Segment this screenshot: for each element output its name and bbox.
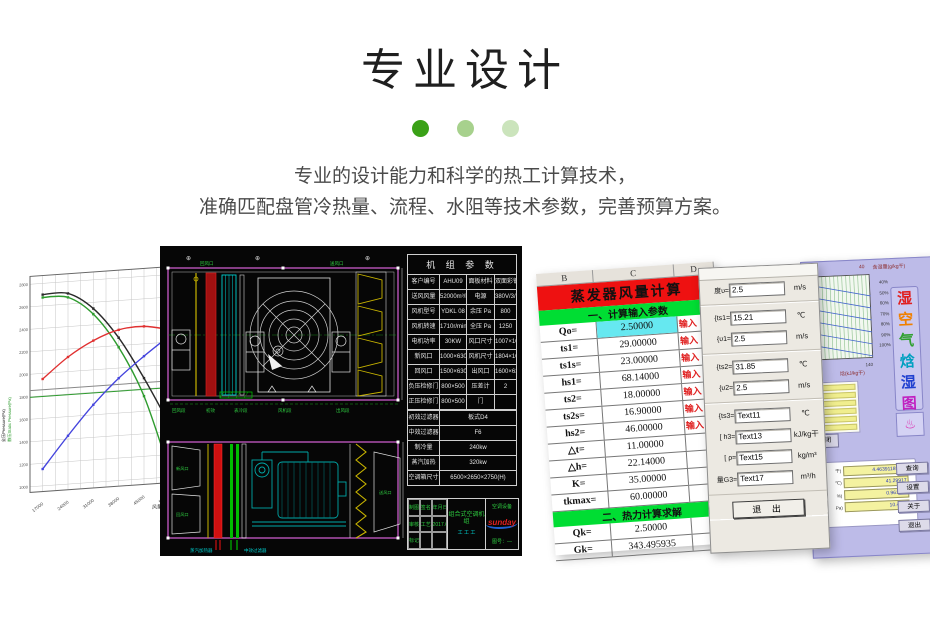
psy-rh-tick: 90% — [874, 332, 890, 338]
cad-table-cell: 30KW — [440, 335, 467, 349]
cad-table-cell: 全压 Pa — [467, 320, 495, 334]
svg-text:⊕: ⊕ — [365, 256, 370, 262]
dialog-field-input[interactable]: 31.85 — [732, 358, 789, 374]
svg-text:2200: 2200 — [19, 349, 29, 355]
cad-table-cell: 240kw — [440, 441, 516, 455]
dialog-field-label: {υ1= — [705, 336, 731, 344]
cad-table-cell: 320kw — [440, 456, 516, 470]
title-block-cell: 标记 — [408, 532, 420, 549]
divider-dot — [412, 120, 429, 137]
psy-title-char: 湿 — [897, 287, 913, 309]
dialog-field-unit: m³/h — [793, 471, 823, 481]
title-block-cell: 制图 — [408, 499, 420, 516]
cad-table-cell: 新风口 — [408, 350, 440, 364]
cad-parameter-table: 机 组 参 数 客户编号 AHU09 面板材料 双面彩钢板 送风风量 52 — [407, 254, 517, 486]
cad-table-cell: YDKL 08 — [440, 305, 467, 319]
cad-table-cell: 面板材料 — [467, 275, 495, 289]
cad-top-label-2: 送风口 — [330, 260, 344, 267]
cad-table-cell: 1500×630 — [440, 365, 467, 379]
dialog-field-unit: m/s — [787, 331, 817, 341]
svg-text:1600: 1600 — [19, 417, 29, 423]
psy-button[interactable]: 设置 — [897, 481, 929, 494]
cad-table-cell: 余压 Pa — [467, 305, 495, 319]
cad-table-row: 蒸汽加热 320kw — [407, 455, 517, 470]
cad-table-row: 回风口 1500×630 出风口 1600×630 — [407, 364, 517, 379]
page-title: 专业设计 — [0, 0, 930, 98]
psy-top-axis-label: 含湿量(g/kg干) — [872, 262, 905, 270]
dialog-field-label: {υ2= — [707, 385, 733, 393]
cad-table-row: 初效过滤器 板式D4 — [407, 410, 517, 425]
cad-view2-label-1: 新风口 — [176, 465, 189, 472]
cad-table-cell: AHU09 — [440, 275, 467, 289]
svg-text:2600: 2600 — [19, 304, 29, 310]
svg-text:1000: 1000 — [19, 484, 29, 490]
cad-table-cell: 1007×1007 — [495, 335, 516, 349]
svg-text:1200: 1200 — [19, 462, 29, 468]
title-block-cell: 年月日 — [432, 499, 447, 516]
cad-table-row: 空调箱尺寸 6500×2650×2750(H) — [407, 470, 517, 486]
cad-table-row: 正压检修门 800×500 门 — [407, 394, 517, 410]
dialog-field-row: 量G3= Text17 m³/h — [708, 465, 827, 491]
cad-view2-label-3: 送风口 — [379, 489, 392, 496]
cad-table-cell: 800 — [495, 305, 516, 319]
cad-table-row: 风机型号 YDKL 08 余压 Pa 800 — [407, 304, 517, 319]
psy-button[interactable]: 关于 — [898, 500, 930, 513]
cad-table-cell: 风机型号 — [408, 305, 440, 319]
cad-table-cell: 800×500 — [440, 380, 467, 394]
fan-chart-ylabel-total: 全压Pressure(Pa) — [0, 408, 7, 442]
dialog-field-unit: ℃ — [790, 408, 820, 418]
dialog-field-unit: kg/m³ — [792, 450, 822, 460]
title-block-cell — [432, 532, 447, 549]
psy-rh-tick: 80% — [874, 321, 890, 327]
title-block-cell: 审核 — [408, 516, 420, 533]
dialog-field-label: {ts3= — [708, 413, 734, 421]
dialog-field-input[interactable]: Text11 — [734, 407, 791, 423]
description: 专业的设计能力和科学的热工计算技术， 准确匹配盘管冷热量、流程、水阻等技术参数，… — [0, 161, 930, 223]
cad-table-cell: 电机功率 — [408, 335, 440, 349]
psy-bottom-tick: 140 — [865, 362, 873, 367]
cad-section-label-5: 出风段 — [336, 407, 350, 414]
description-line1: 专业的设计能力和科学的热工计算技术， — [294, 166, 636, 187]
cad-table-cell: 正压检修门 — [408, 395, 440, 409]
cad-table-cell: F6 — [440, 426, 516, 440]
app-logo-icon: ♨ — [896, 412, 925, 437]
dialog-field-row: {υ2= 2.5 m/s — [704, 374, 823, 400]
svg-text:38000: 38000 — [107, 496, 121, 508]
dialog-exit-button[interactable]: 退 出 — [732, 499, 805, 519]
dialog-field-row: {υ1= 2.5 m/s — [702, 325, 821, 351]
psy-title-char: 焓 — [899, 350, 915, 372]
cad-view2-label-2: 回风口 — [176, 512, 189, 518]
section-divider-dots — [0, 120, 930, 137]
cad-table-cell: 中效过滤器 — [408, 426, 440, 440]
cad-revision-marks: 工 工 工 — [458, 529, 476, 536]
cad-table-cell: 双面彩钢板 — [495, 275, 516, 289]
cad-table-cell: 380V/3/50 — [495, 290, 516, 304]
svg-text:2800: 2800 — [19, 282, 29, 288]
cad-table-row: 负压检修门 800×500 压差计 2 — [407, 379, 517, 394]
psy-button[interactable]: 退出 — [898, 519, 930, 532]
psy-result-label: 干) — [825, 468, 841, 475]
cad-table-cell: 电源 — [467, 290, 495, 304]
cad-table-cell: 负压检修门 — [408, 380, 440, 394]
cad-table-row: 送风风量 52000m³/h 电源 380V/3/50 — [407, 289, 517, 304]
cad-table-cell: 送风风量 — [408, 290, 440, 304]
svg-text:1400: 1400 — [19, 439, 29, 445]
divider-dot — [457, 120, 474, 137]
psy-button[interactable]: 查询 — [896, 462, 928, 475]
cad-table-cell: 1250 — [495, 320, 516, 334]
cad-drawing-panel: ⊕ ⊕ ⊕ 回风口 送风口 — [160, 246, 522, 556]
cad-table-cell: 800×500 — [440, 395, 467, 409]
cad-table-cell: 回风口 — [408, 365, 440, 379]
svg-text:31000: 31000 — [82, 497, 96, 509]
cad-table-cell: 门 — [467, 395, 495, 409]
psy-bottom-axis-label: 焓(kJ/kg干) — [840, 369, 865, 377]
cad-table-row: 电机功率 30KW 风口尺寸 1007×1007 — [407, 334, 517, 349]
psy-top-tick: 40 — [859, 264, 865, 271]
svg-text:45000: 45000 — [132, 494, 146, 506]
cad-table-cell: 风机尺寸 — [467, 350, 495, 364]
psy-rh-tick: 100% — [875, 342, 891, 348]
cad-section-label-2: 初效 — [206, 407, 215, 414]
cad-section-label-3: 表冷段 — [234, 407, 248, 414]
cad-table-cell: 2 — [495, 380, 516, 394]
cad-table-row: 客户编号 AHU09 面板材料 双面彩钢板 — [407, 274, 517, 289]
cad-table-cell: 1710r/min — [440, 320, 467, 334]
sheet-row-label: Gk= — [555, 540, 613, 560]
cad-table-row: 中效过滤器 F6 — [407, 425, 517, 440]
svg-text:2400: 2400 — [19, 327, 29, 333]
cad-table-title: 机 组 参 数 — [407, 254, 517, 274]
cad-table-cell: 6500×2650×2750(H) — [440, 471, 516, 485]
dialog-field-unit: m/s — [789, 380, 819, 390]
brand-logo: sunday — [486, 518, 518, 529]
cad-table-row: 风机转速 1710r/min 全压 Pa 1250 — [407, 319, 517, 334]
psy-rh-tick: 50% — [872, 290, 888, 296]
cad-product-name: 组合式空调机组 — [448, 512, 485, 526]
fan-curve-svg: 1000120014001600180020002200240026002800… — [0, 257, 186, 532]
cad-table-cell: 风机转速 — [408, 320, 440, 334]
dialog-field-unit: kJ/kg干 — [791, 428, 821, 440]
dialog-field-input[interactable]: Text13 — [735, 428, 792, 444]
cad-bottom-label-2: 中效过滤器 — [244, 547, 267, 554]
dialog-field-label: [ h3= — [709, 434, 735, 442]
cad-section-label-1: 回风段 — [172, 407, 186, 414]
dialog-field-label: [ ρ= — [710, 455, 736, 463]
psy-title-char: 湿 — [900, 371, 916, 393]
cad-table-cell: 蒸汽加热 — [408, 456, 440, 470]
psy-title-char: 气 — [899, 329, 915, 351]
svg-text:2000: 2000 — [19, 372, 29, 378]
cad-table-cell: 空调箱尺寸 — [408, 471, 440, 485]
psy-result-label: ℃) — [826, 480, 842, 487]
psy-title-char: 空 — [898, 308, 914, 330]
cad-table-cell: 风口尺寸 — [467, 335, 495, 349]
dialog-field-input[interactable]: 15.21 — [730, 309, 787, 325]
fan-chart-ylabel-static: 静压Static Pressure(Pa) — [6, 396, 13, 442]
cad-table-row: 新风口 1000×630 风机尺寸 1804×1097 — [407, 349, 517, 364]
dialog-field-label: 度υ= — [703, 285, 729, 296]
cad-table-cell: 压差计 — [467, 380, 495, 394]
cad-table-cell: 制冷量 — [408, 441, 440, 455]
description-line2: 准确匹配盘管冷热量、流程、水阻等技术参数，完善预算方案。 — [199, 197, 731, 218]
cad-table-cell: 52000m³/h — [440, 290, 467, 304]
cad-table-cell: 1600×630 — [495, 365, 516, 379]
cad-table-cell: 出风口 — [467, 365, 495, 379]
cad-table-row: 制冷量 240kw — [407, 440, 517, 455]
svg-text:17000: 17000 — [31, 501, 45, 513]
dialog-field-label: {ts2= — [706, 364, 732, 372]
cad-bottom-label-1: 蒸汽加热器 — [190, 547, 213, 554]
dialog-field-unit: ℃ — [788, 359, 818, 369]
psy-rh-tick: 40% — [872, 279, 888, 285]
psy-result-label: Pa) — [827, 505, 843, 511]
psy-rh-tick: 60% — [873, 300, 889, 306]
page: 专业设计 专业的设计能力和科学的热工计算技术， 准确匹配盘管冷热量、流程、水阻等… — [0, 0, 930, 625]
dialog-field-input[interactable]: Text15 — [736, 449, 793, 465]
svg-text:1800: 1800 — [19, 394, 29, 400]
dialog-field-unit: ℃ — [786, 310, 816, 320]
calc-dialog: 度υ= 2.5 m/s {ts1= 15.21 ℃ {υ1= 2 — [698, 263, 830, 554]
psy-rh-tick: 70% — [873, 311, 889, 317]
psy-result-label: %) — [826, 493, 842, 499]
cad-section-label-4: 风机段 — [278, 407, 292, 414]
psy-app-title: 湿空气焓湿图 — [890, 286, 923, 411]
title-block-cell — [420, 532, 432, 549]
title-block-cell: 2017.6.1 — [432, 516, 447, 533]
cad-drawing-number: 图号：— — [492, 538, 512, 545]
cad-table-cell: 1804×1097 — [495, 350, 516, 364]
cad-title-block: 制图签名年月日审核工艺2017.6.1标记 组合式空调机组 工 工 工 空调设备… — [407, 498, 519, 550]
svg-text:⊕: ⊕ — [255, 256, 260, 262]
title-block-cell: 签名 — [420, 499, 432, 516]
cad-drawing-svg: ⊕ ⊕ ⊕ 回风口 送风口 — [160, 246, 405, 556]
cad-table-cell: 客户编号 — [408, 275, 440, 289]
dialog-field-label: {ts1= — [704, 315, 730, 323]
svg-text:⊕: ⊕ — [186, 256, 191, 262]
psy-title-char: 图 — [901, 392, 917, 414]
dialog-field-label: 量G3= — [711, 474, 737, 485]
fan-curve-chart: 1000120014001600180020002200240026002800… — [0, 264, 186, 526]
dialog-field-input[interactable]: 2.5 — [729, 281, 786, 297]
cad-table-cell: 板式D4 — [440, 411, 516, 425]
cad-company: 空调设备 — [492, 503, 512, 510]
divider-dot — [502, 120, 519, 137]
cad-top-label-1: 回风口 — [200, 261, 214, 267]
dialog-field-input[interactable]: 2.5 — [731, 330, 788, 346]
dialog-field-row: 度υ= 2.5 m/s — [700, 276, 819, 302]
cad-table-cell — [495, 395, 516, 409]
dialog-field-input[interactable]: Text17 — [737, 470, 794, 486]
dialog-field-input[interactable]: 2.5 — [733, 379, 790, 395]
cad-table-cell: 1000×630 — [440, 350, 467, 364]
cad-table-cell: 初效过滤器 — [408, 411, 440, 425]
dialog-field-unit: m/s — [785, 282, 815, 292]
svg-text:24000: 24000 — [56, 499, 70, 511]
title-block-cell: 工艺 — [420, 516, 432, 533]
